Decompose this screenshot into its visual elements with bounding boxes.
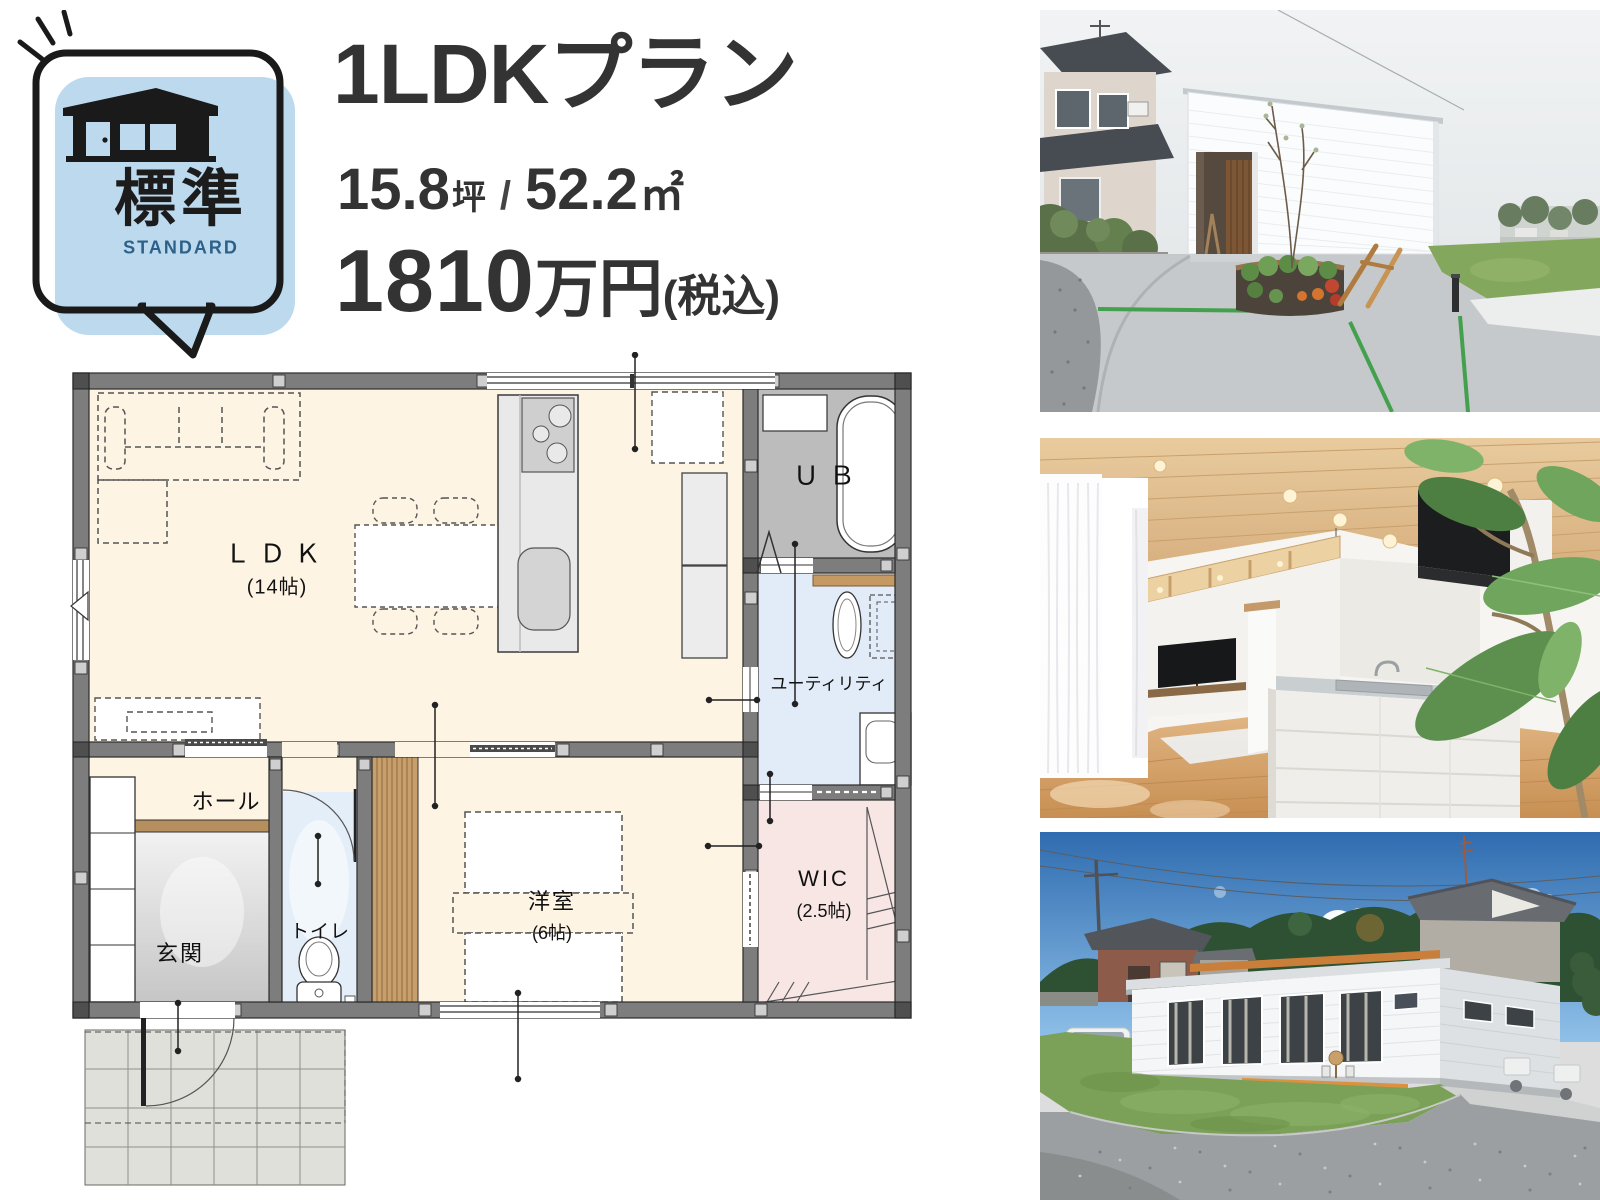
photo-exterior-rear: [1040, 832, 1600, 1200]
floor-plan: ＬＤＫ (14帖) ＵＢ ユーティリティ ホール 玄関 トイレ 洋室 (6帖) …: [67, 352, 917, 1192]
floor-plan-drawing: [67, 352, 917, 1192]
room-label-entrance: 玄関: [156, 936, 204, 968]
entrance-closet: [90, 777, 135, 1002]
tv: [1158, 638, 1236, 688]
kitchen-counter: [498, 395, 578, 652]
room-label-ub: ＵＢ: [793, 456, 865, 493]
neighbor-house: [1040, 20, 1174, 278]
ldk-counter-dashed: [95, 698, 260, 740]
badge-roman-label: STANDARD: [123, 238, 239, 259]
white-house: [1183, 88, 1443, 262]
room-label-toilet: トイレ: [290, 917, 350, 944]
kitchen-cabinets: [682, 473, 727, 658]
room-label-bedroom-size: (6帖): [532, 919, 572, 945]
area-tsubo-value: 15.8: [337, 157, 450, 222]
standard-badge: 標準 STANDARD: [8, 10, 308, 360]
wood-door: [1226, 160, 1252, 254]
room-label-hall: ホール: [191, 784, 260, 816]
kitchen-sink: [518, 548, 570, 630]
badge-kanji-label: 標準: [114, 148, 248, 238]
window-curtains: [1040, 474, 1148, 778]
utility-basin: [833, 592, 861, 658]
price-unit: 万円: [535, 253, 663, 325]
area-divider: /: [500, 174, 511, 218]
refrigerator-space-dashed: [652, 392, 723, 463]
price-value: 1810: [335, 231, 535, 330]
wood-slat-wall: [372, 757, 418, 1002]
room-label-utility: ユーティリティ: [771, 670, 888, 695]
plan-area-line: 15.8坪/52.2㎡: [337, 156, 684, 223]
room-label-bedroom: 洋室: [528, 884, 576, 916]
photo-interior-ldk: [1040, 438, 1600, 818]
bollard-light: [1452, 276, 1459, 312]
area-sqm-unit: ㎡: [640, 170, 684, 219]
flyer-page: 標準 STANDARD 1LDKプラン 15.8坪/52.2㎡ 1810万円(税…: [0, 0, 1600, 1200]
plan-title: 1LDKプラン: [333, 28, 797, 120]
photo-exterior-front: [1040, 10, 1600, 412]
price-tax-note: (税込): [663, 272, 780, 321]
entrance-porch: [85, 1030, 345, 1185]
room-label-ldk: ＬＤＫ: [224, 534, 329, 571]
area-sqm-value: 52.2: [525, 157, 638, 222]
flower-bed: [1236, 255, 1344, 316]
plan-header: 1LDKプラン 15.8坪/52.2㎡ 1810万円(税込): [333, 28, 993, 348]
room-label-wic-size: (2.5帖): [796, 897, 851, 923]
room-label-ldk-size: (14帖): [247, 571, 308, 600]
room-label-wic: WIC: [798, 866, 850, 892]
area-tsubo-unit: 坪: [452, 179, 486, 217]
plan-price-line: 1810万円(税込): [335, 230, 780, 332]
